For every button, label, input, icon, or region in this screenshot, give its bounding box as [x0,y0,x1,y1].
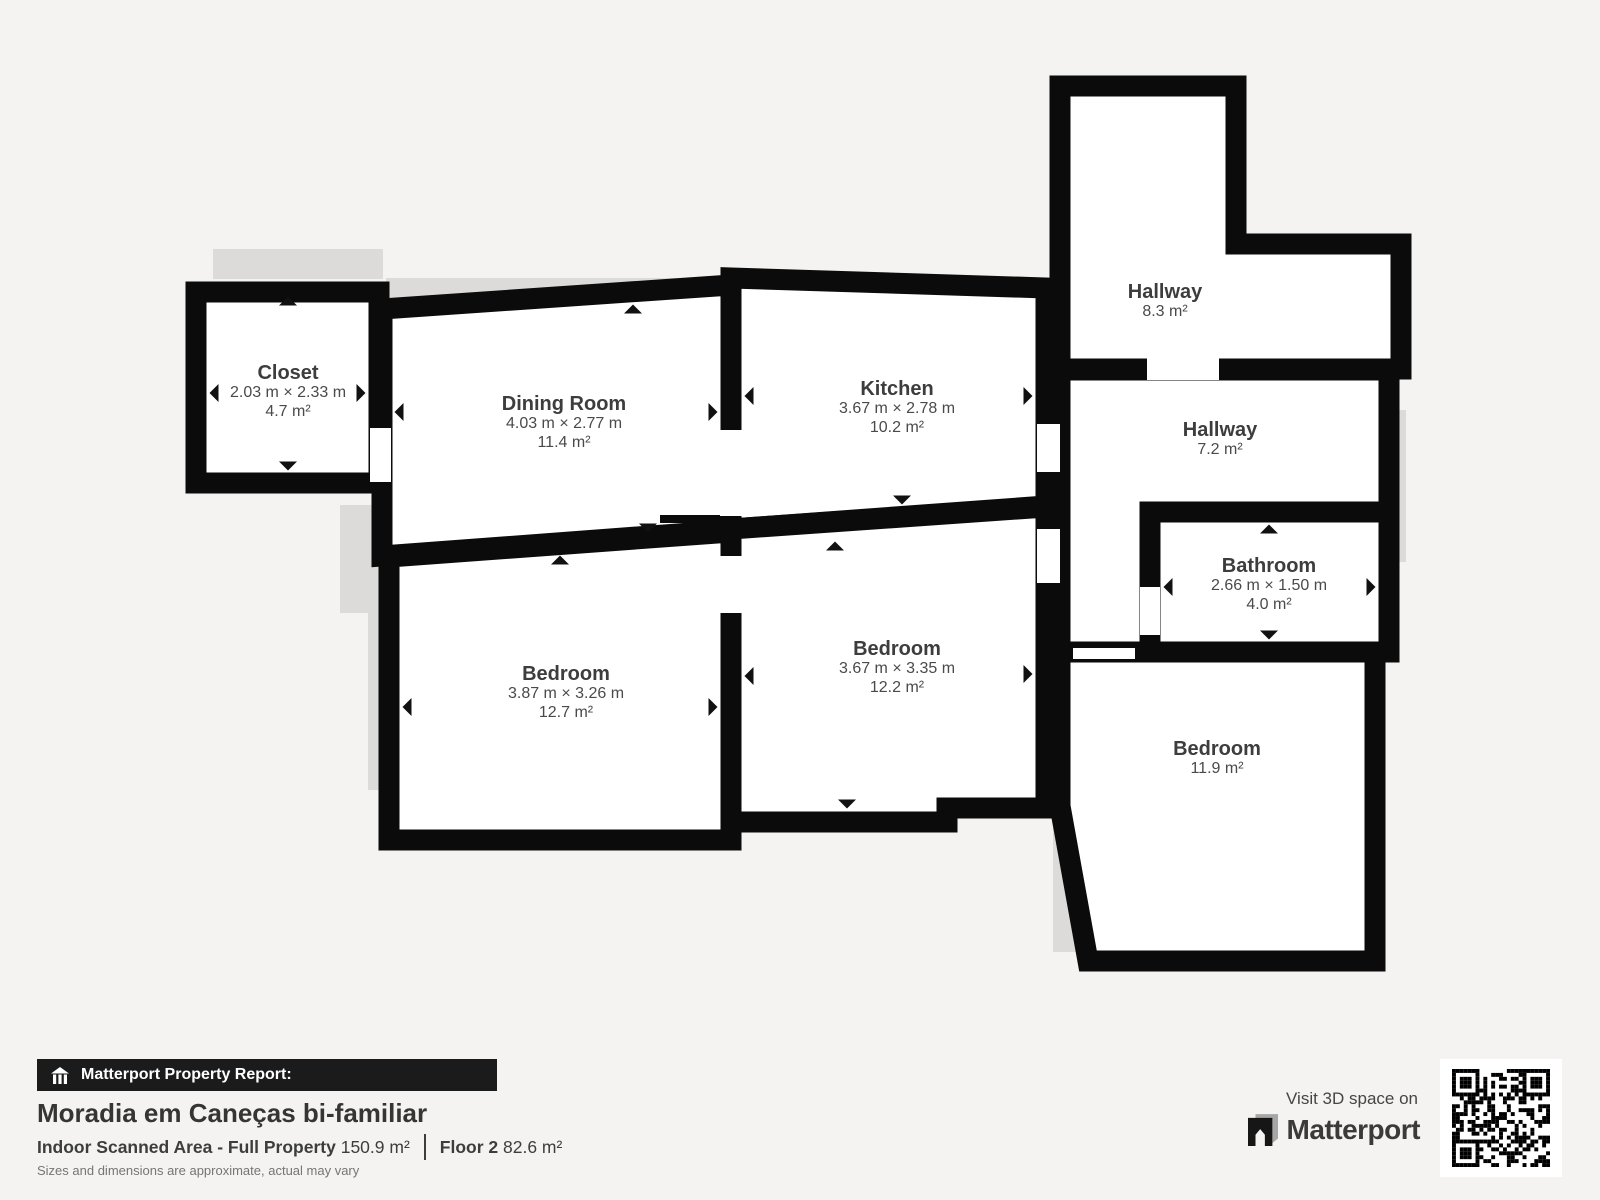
room-area: 8.3 m² [1128,302,1202,321]
room-label-bedroom-left: Bedroom 3.87 m × 3.26 m 12.7 m² [508,664,624,722]
room-area: 11.9 m² [1173,759,1261,778]
room-hallway-upper [1060,86,1401,369]
door-hallway-bedroom-right [1073,648,1135,659]
room-name: Hallway [1183,420,1257,440]
house-icon [51,1067,69,1084]
matterport-floorplan-report: Closet 2.03 m × 2.33 m 4.7 m² Dining Roo… [0,0,1600,1200]
scanned-area-label: Indoor Scanned Area - Full Property [37,1137,336,1158]
property-title: Moradia em Caneças bi-familiar [37,1098,427,1129]
door-kitchen-hallway [1037,424,1060,472]
room-dimensions: 3.87 m × 3.26 m [508,684,624,703]
area-stats: Indoor Scanned Area - Full Property 150.… [37,1134,562,1160]
room-label-bathroom: Bathroom 2.66 m × 1.50 m 4.0 m² [1211,556,1327,614]
report-bar-label: Matterport Property Report: [81,1066,292,1084]
room-area: 11.4 m² [502,433,626,452]
floorplan-svg [0,0,1600,1010]
room-name: Bathroom [1211,556,1327,576]
room-label-kitchen: Kitchen 3.67 m × 2.78 m 10.2 m² [839,379,955,437]
brand-wordmark: Matterport [1287,1114,1420,1146]
door-bedroom-middle-hallway [1037,529,1060,583]
room-dimensions: 3.67 m × 3.35 m [839,659,955,678]
room-name: Hallway [1128,282,1202,302]
room-name: Bedroom [839,639,955,659]
room-name: Bedroom [1173,739,1261,759]
room-area: 4.0 m² [1211,595,1327,614]
half-wall [660,515,733,523]
room-name: Dining Room [502,394,626,414]
qr-modules [1452,1069,1550,1167]
floor-value: 82.6 m² [503,1137,562,1158]
room-bedroom-right [1060,652,1375,961]
disclaimer-text: Sizes and dimensions are approximate, ac… [37,1163,359,1178]
qr-code [1440,1059,1562,1177]
door-bedroom-left-middle [720,556,742,613]
visit-label: Visit 3D space on [1100,1089,1418,1109]
door-bathroom [1140,587,1160,635]
room-label-bedroom-right: Bedroom 11.9 m² [1173,739,1261,778]
room-dimensions: 3.67 m × 2.78 m [839,399,955,418]
door-dining-kitchen [720,430,742,516]
room-area: 10.2 m² [839,418,955,437]
rooms [196,86,1401,961]
room-label-bedroom-middle: Bedroom 3.67 m × 3.35 m 12.2 m² [839,639,955,697]
brand-row: Matterport [1100,1114,1420,1146]
room-dimensions: 2.03 m × 2.33 m [230,383,346,402]
floor-label: Floor 2 [440,1137,498,1158]
room-area: 12.2 m² [839,678,955,697]
room-area: 7.2 m² [1183,440,1257,459]
room-label-hallway-upper: Hallway 8.3 m² [1128,282,1202,321]
room-dimensions: 2.66 m × 1.50 m [1211,576,1327,595]
room-name: Kitchen [839,379,955,399]
report-bar: Matterport Property Report: [37,1059,497,1091]
room-name: Closet [230,363,346,383]
matterport-m-icon [1248,1114,1278,1146]
room-area: 12.7 m² [508,703,624,722]
room-label-closet: Closet 2.03 m × 2.33 m 4.7 m² [230,363,346,421]
room-dimensions: 4.03 m × 2.77 m [502,414,626,433]
visit-3d-cta: Visit 3D space on Matterport [1100,1089,1420,1146]
room-label-hallway-lower: Hallway 7.2 m² [1183,420,1257,459]
door-hallway-hallway [1147,357,1219,380]
room-name: Bedroom [508,664,624,684]
door-closet-dining [370,428,391,482]
room-label-dining: Dining Room 4.03 m × 2.77 m 11.4 m² [502,394,626,452]
scanned-area-value: 150.9 m² [341,1137,410,1158]
stat-divider [424,1134,426,1160]
room-area: 4.7 m² [230,402,346,421]
